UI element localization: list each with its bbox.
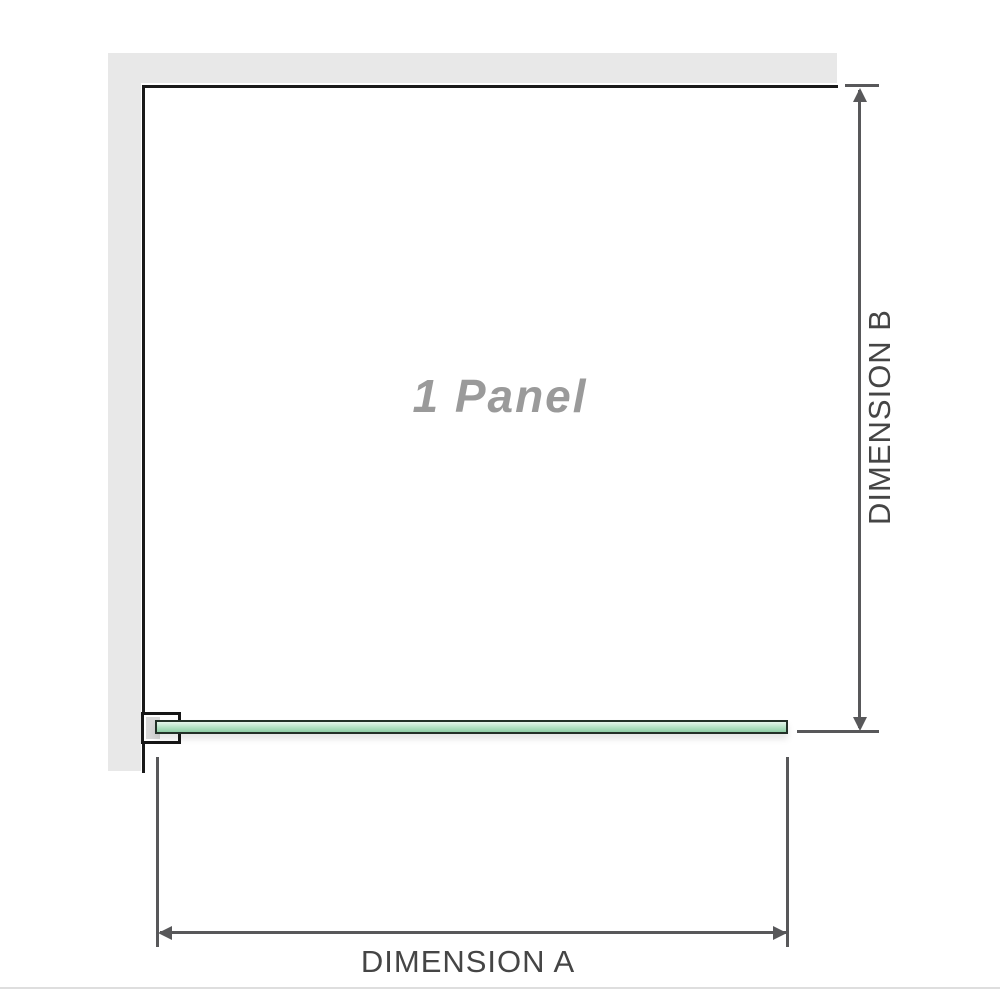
dimension-b-bottom-tick xyxy=(797,730,879,733)
wall-left xyxy=(108,53,141,771)
arrowhead-left-icon xyxy=(158,926,172,940)
panel-dimension-diagram: 1 Panel DIMENSION B DIMENSION A xyxy=(0,0,1000,1000)
wall-top xyxy=(108,53,837,83)
glass-panel-bar xyxy=(155,720,788,734)
panel-count-label: 1 Panel xyxy=(412,369,587,423)
arrowhead-down-icon xyxy=(853,717,867,731)
footer-divider xyxy=(0,987,1000,989)
dimension-a-right-extension-line xyxy=(786,757,789,947)
dimension-b-top-tick xyxy=(845,84,879,87)
dimension-b-label: DIMENSION B xyxy=(862,309,898,525)
dimension-a-label: DIMENSION A xyxy=(361,944,575,980)
arrowhead-right-icon xyxy=(773,926,787,940)
arrowhead-up-icon xyxy=(853,88,867,102)
dimension-b-line xyxy=(858,90,861,728)
wall-edge-left-line xyxy=(142,85,145,773)
dimension-a-left-extension-line xyxy=(156,757,159,947)
wall-edge-top-line xyxy=(142,85,838,88)
dimension-a-line xyxy=(160,931,787,934)
